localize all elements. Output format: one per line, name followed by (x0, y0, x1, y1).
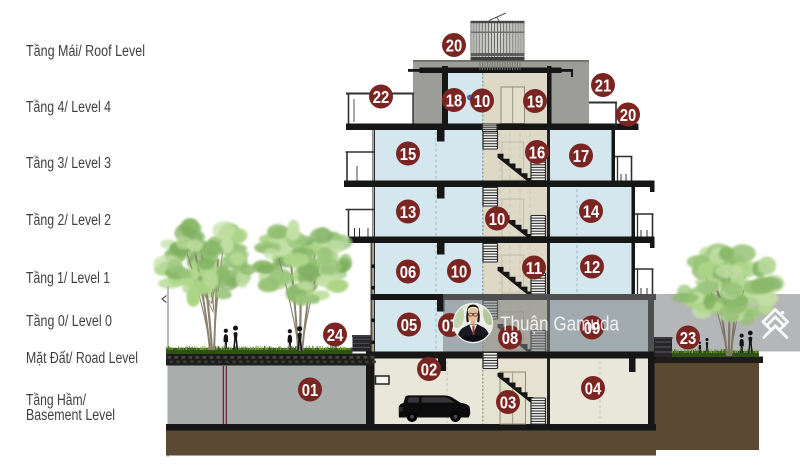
svg-text:12: 12 (584, 257, 601, 277)
svg-text:17: 17 (573, 146, 590, 166)
svg-text:22: 22 (373, 87, 390, 107)
svg-text:13: 13 (400, 202, 417, 222)
svg-text:Tầng 1/ Level 1: Tầng 1/ Level 1 (26, 270, 110, 287)
svg-text:Tầng 4/ Level 4: Tầng 4/ Level 4 (26, 99, 111, 116)
svg-text:15: 15 (400, 144, 417, 164)
svg-text:02: 02 (421, 359, 438, 379)
svg-text:04: 04 (585, 378, 602, 398)
svg-text:10: 10 (474, 91, 491, 111)
svg-text:10: 10 (451, 261, 468, 281)
svg-text:Basement Level: Basement Level (26, 407, 115, 424)
svg-text:10: 10 (489, 209, 506, 229)
svg-text:21: 21 (595, 75, 612, 95)
svg-text:20: 20 (620, 105, 637, 125)
svg-text:03: 03 (500, 392, 517, 412)
svg-text:24: 24 (327, 325, 344, 345)
svg-text:Tầng 2/ Level 2: Tầng 2/ Level 2 (26, 212, 111, 229)
svg-text:01: 01 (302, 380, 319, 400)
svg-text:Tầng 3/ Level 3: Tầng 3/ Level 3 (26, 155, 111, 172)
svg-text:23: 23 (680, 328, 697, 348)
svg-text:18: 18 (446, 90, 463, 110)
svg-text:16: 16 (529, 142, 546, 162)
svg-text:14: 14 (583, 201, 600, 221)
svg-text:Tầng Mái/ Roof Level: Tầng Mái/ Roof Level (26, 43, 145, 60)
svg-text:05: 05 (401, 315, 418, 335)
svg-text:19: 19 (527, 91, 544, 111)
svg-text:Mặt Đất/ Road Level: Mặt Đất/ Road Level (26, 350, 138, 367)
svg-text:20: 20 (446, 35, 463, 55)
svg-text:06: 06 (400, 262, 417, 282)
svg-text:Thuận Gamuda: Thuận Gamuda (500, 314, 620, 336)
svg-text:Tầng 0/ Level 0: Tầng 0/ Level 0 (26, 313, 112, 330)
svg-text:11: 11 (526, 258, 543, 278)
